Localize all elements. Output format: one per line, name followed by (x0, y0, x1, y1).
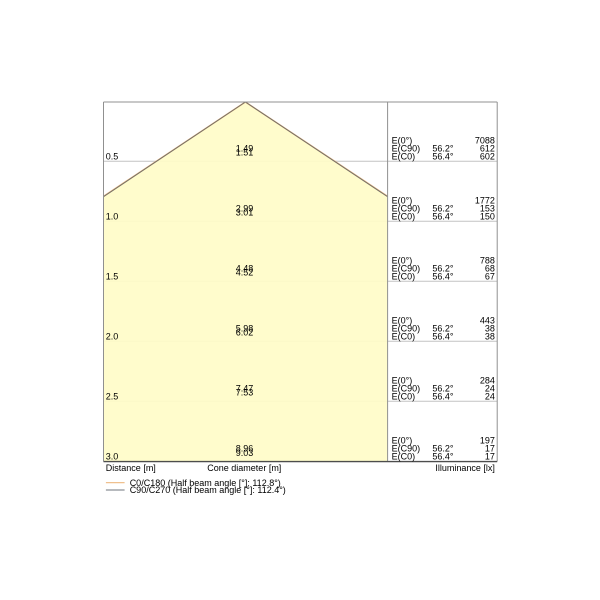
svg-text:17: 17 (485, 452, 495, 462)
svg-text:24: 24 (485, 392, 495, 402)
svg-text:7.53: 7.53 (236, 388, 254, 398)
svg-text:1.0: 1.0 (106, 211, 119, 221)
svg-text:E(C0): E(C0) (392, 392, 416, 402)
svg-text:602: 602 (480, 152, 495, 162)
svg-text:1.5: 1.5 (106, 271, 119, 281)
svg-text:6.02: 6.02 (236, 328, 254, 338)
svg-text:3.01: 3.01 (236, 208, 254, 218)
svg-text:E(C0): E(C0) (392, 332, 416, 342)
svg-text:38: 38 (485, 332, 495, 342)
svg-text:E(C0): E(C0) (392, 272, 416, 282)
svg-text:56.4°: 56.4° (432, 392, 454, 402)
svg-text:1.51: 1.51 (236, 148, 254, 158)
svg-text:3.0: 3.0 (106, 451, 119, 461)
svg-text:150: 150 (480, 212, 495, 222)
svg-text:56.4°: 56.4° (432, 152, 454, 162)
svg-text:E(C0): E(C0) (392, 212, 416, 222)
svg-text:67: 67 (485, 272, 495, 282)
svg-text:56.4°: 56.4° (432, 332, 454, 342)
svg-text:9.03: 9.03 (236, 448, 254, 458)
svg-text:56.4°: 56.4° (432, 272, 454, 282)
svg-text:56.4°: 56.4° (432, 452, 454, 462)
svg-text:E(C0): E(C0) (392, 452, 416, 462)
svg-text:2.5: 2.5 (106, 391, 119, 401)
svg-text:2.0: 2.0 (106, 331, 119, 341)
svg-text:56.4°: 56.4° (432, 212, 454, 222)
svg-text:0.5: 0.5 (106, 151, 119, 161)
svg-text:E(C0): E(C0) (392, 152, 416, 162)
svg-text:Distance [m]: Distance [m] (106, 463, 156, 473)
svg-text:C90/C270 (Half beam angle [°]:: C90/C270 (Half beam angle [°]: 112.4°) (130, 485, 286, 495)
svg-text:Cone diameter [m]: Cone diameter [m] (207, 463, 281, 473)
svg-text:Illuminance [lx]: Illuminance [lx] (435, 463, 495, 473)
svg-text:4.52: 4.52 (236, 268, 254, 278)
